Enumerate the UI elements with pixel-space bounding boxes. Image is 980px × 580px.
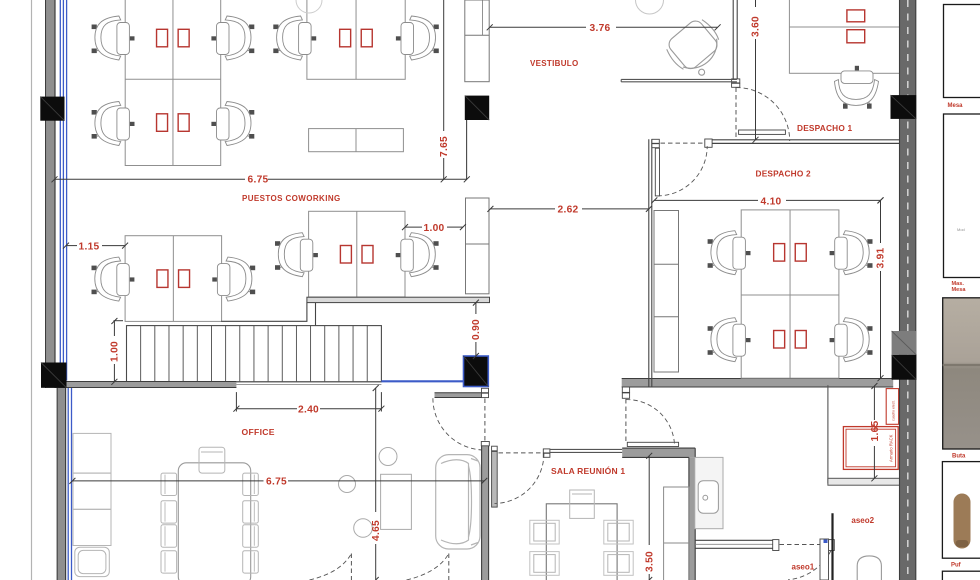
svg-text:4.10: 4.10 [761,196,782,207]
svg-text:PUESTOS COWORKING: PUESTOS COWORKING [242,194,341,203]
svg-text:OFFICE: OFFICE [242,427,275,437]
svg-text:3.60: 3.60 [751,16,762,37]
svg-text:0.90: 0.90 [471,319,482,340]
svg-text:1.65: 1.65 [870,420,881,441]
svg-text:2.40: 2.40 [298,404,319,415]
svg-text:1.15: 1.15 [79,241,100,252]
svg-text:Armario RACK: Armario RACK [889,434,894,462]
svg-text:1.00: 1.00 [110,341,121,362]
svg-text:SALA REUNIÓN 1: SALA REUNIÓN 1 [551,465,625,476]
svg-text:DESPACHO 2: DESPACHO 2 [756,168,812,178]
svg-text:Mesa: Mesa [952,287,967,293]
svg-text:1.00: 1.00 [424,223,445,234]
svg-text:Mod: Mod [957,227,965,232]
svg-text:aseo2: aseo2 [851,516,874,525]
svg-text:4.65: 4.65 [371,520,382,541]
svg-text:Puf: Puf [951,563,962,569]
svg-text:2.62: 2.62 [558,204,579,215]
svg-text:3.50: 3.50 [644,551,655,572]
svg-text:3.76: 3.76 [590,23,611,34]
svg-text:6.75: 6.75 [248,175,269,186]
svg-text:Mesa: Mesa [948,103,964,109]
svg-text:3.91: 3.91 [876,247,887,268]
svg-text:cuadro elect.: cuadro elect. [892,400,896,421]
svg-text:VESTIBULO: VESTIBULO [530,59,578,68]
svg-text:7.65: 7.65 [439,136,450,157]
svg-text:aseo1: aseo1 [792,563,815,572]
svg-text:DESPACHO 1: DESPACHO 1 [797,123,853,133]
svg-text:6.75: 6.75 [266,477,287,488]
svg-text:Buta: Buta [952,454,966,460]
